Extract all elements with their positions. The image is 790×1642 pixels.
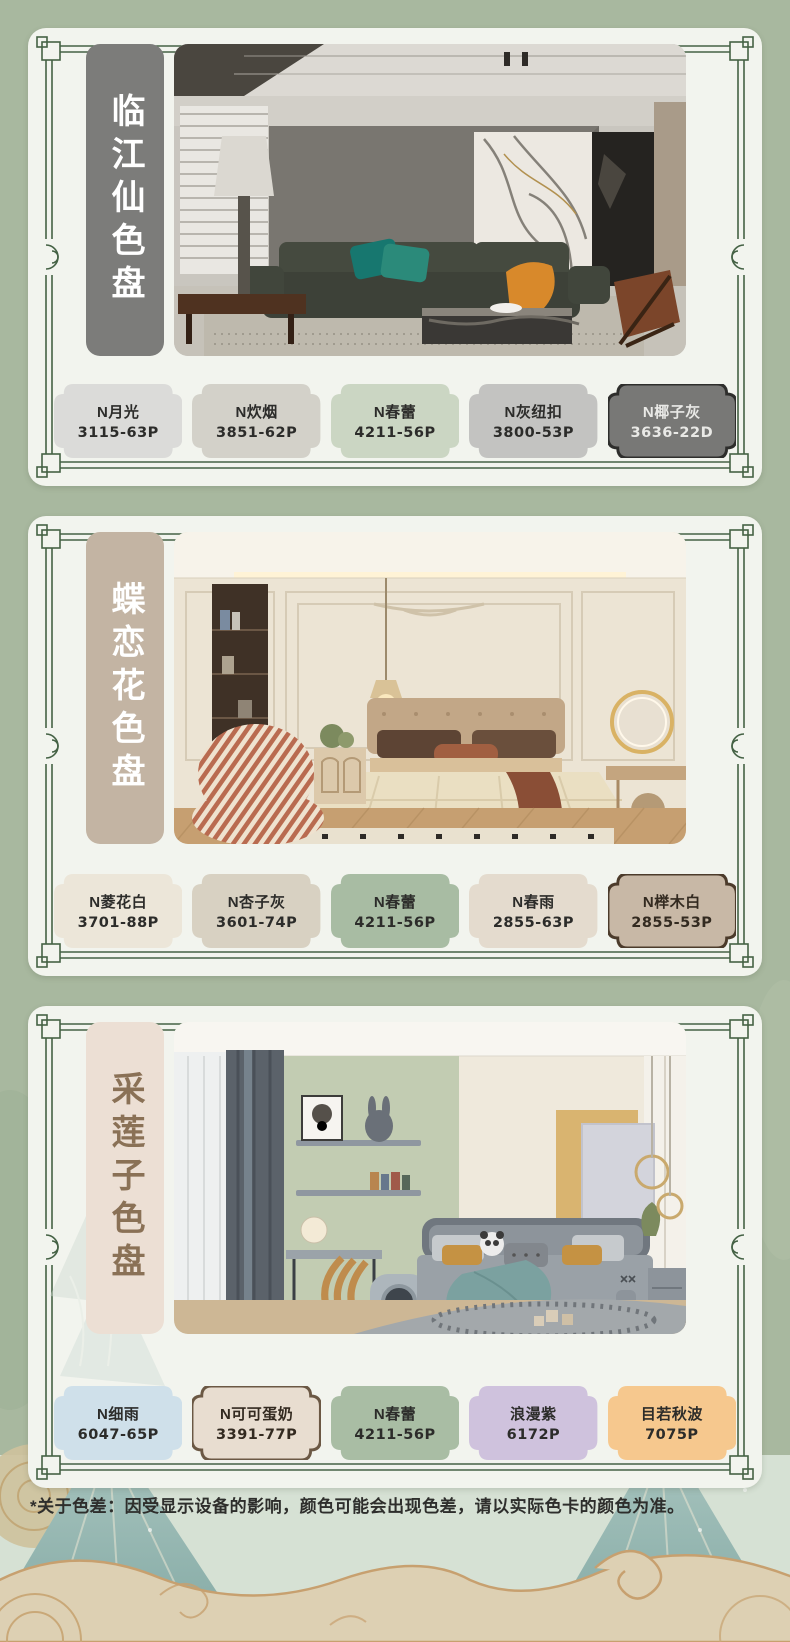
color-swatch: N春雨 2855-63P [469, 874, 597, 948]
kids-room-photo [174, 1022, 686, 1334]
palette-card-2: 蝶恋花色盘 [28, 516, 762, 976]
color-swatch: N椰子灰 3636-22D [608, 384, 736, 458]
color-swatch: N杏子灰 3601-74P [192, 874, 320, 948]
room-photo-living-room [174, 44, 686, 356]
swatch-code: 7075P [645, 1427, 698, 1443]
swatch-name: N炊烟 [235, 401, 277, 422]
swatch-name: N春蕾 [374, 401, 416, 422]
swatch-code: 3391-77P [216, 1427, 297, 1443]
palette-title-banner: 采莲子色盘 [86, 1022, 164, 1334]
poster-page: 临江仙色盘 N月光 3115-63 [0, 0, 790, 1642]
living-room-photo [174, 44, 686, 356]
color-swatch: N春蕾 4211-56P [331, 1386, 459, 1460]
swatch-name: 目若秋波 [641, 1403, 703, 1424]
swatch-name: N细雨 [97, 1403, 139, 1424]
color-swatch: N灰纽扣 3800-53P [469, 384, 597, 458]
swatch-code: 3851-62P [216, 425, 297, 441]
swatch-code: 2855-53P [631, 915, 712, 931]
swatch-list: N细雨 6047-65P N可可蛋奶 3391-77P N春蕾 4211-56P [54, 1386, 736, 1460]
room-photo-kids-room [174, 1022, 686, 1334]
swatch-code: 3601-74P [216, 915, 297, 931]
palette-card-1: 临江仙色盘 N月光 3115-63 [28, 28, 762, 486]
swatch-code: 2855-63P [493, 915, 574, 931]
swatch-code: 3636-22D [631, 425, 714, 441]
color-swatch: 目若秋波 7075P [608, 1386, 736, 1460]
swatch-name: N春蕾 [374, 1403, 416, 1424]
swatch-name: N榉木白 [643, 891, 701, 912]
swatch-list: N菱花白 3701-88P N杏子灰 3601-74P N春蕾 4211-56P [54, 874, 736, 948]
color-swatch: N炊烟 3851-62P [192, 384, 320, 458]
room-photo-bedroom [174, 532, 686, 844]
swatch-code: 3701-88P [78, 915, 159, 931]
swatch-code: 3115-63P [78, 425, 159, 441]
swatch-list: N月光 3115-63P N炊烟 3851-62P N春蕾 4211-56P [54, 384, 736, 458]
color-swatch: N可可蛋奶 3391-77P [192, 1386, 320, 1460]
swatch-name: N菱花白 [89, 891, 147, 912]
color-swatch: 浪漫紫 6172P [469, 1386, 597, 1460]
palette-title: 采莲子色盘 [108, 1071, 142, 1286]
swatch-name: N灰纽扣 [505, 401, 563, 422]
palette-card-3: 采莲子色盘 [28, 1006, 762, 1488]
color-swatch: N春蕾 4211-56P [331, 384, 459, 458]
swatch-name: 浪漫紫 [510, 1403, 557, 1424]
palette-title: 临江仙色盘 [108, 93, 142, 308]
palette-title: 蝶恋花色盘 [108, 581, 142, 796]
palette-title-banner: 蝶恋花色盘 [86, 532, 164, 844]
color-swatch: N菱花白 3701-88P [54, 874, 182, 948]
swatch-name: N春蕾 [374, 891, 416, 912]
swatch-name: N可可蛋奶 [220, 1403, 293, 1424]
color-swatch: N细雨 6047-65P [54, 1386, 182, 1460]
swatch-name: N杏子灰 [228, 891, 286, 912]
swatch-code: 4211-56P [354, 425, 435, 441]
swatch-code: 3800-53P [493, 425, 574, 441]
color-swatch: N春蕾 4211-56P [331, 874, 459, 948]
color-swatch: N榉木白 2855-53P [608, 874, 736, 948]
bedroom-photo [174, 532, 686, 844]
swatch-name: N椰子灰 [643, 401, 701, 422]
swatch-code: 6172P [507, 1427, 560, 1443]
swatch-name: N月光 [97, 401, 139, 422]
swatch-code: 4211-56P [354, 1427, 435, 1443]
swatch-name: N春雨 [512, 891, 554, 912]
swatch-code: 4211-56P [354, 915, 435, 931]
color-swatch: N月光 3115-63P [54, 384, 182, 458]
color-disclaimer: *关于色差：因受显示设备的影响，颜色可能会出现色差，请以实际色卡的颜色为准。 [30, 1492, 685, 1517]
swatch-code: 6047-65P [78, 1427, 159, 1443]
palette-title-banner: 临江仙色盘 [86, 44, 164, 356]
